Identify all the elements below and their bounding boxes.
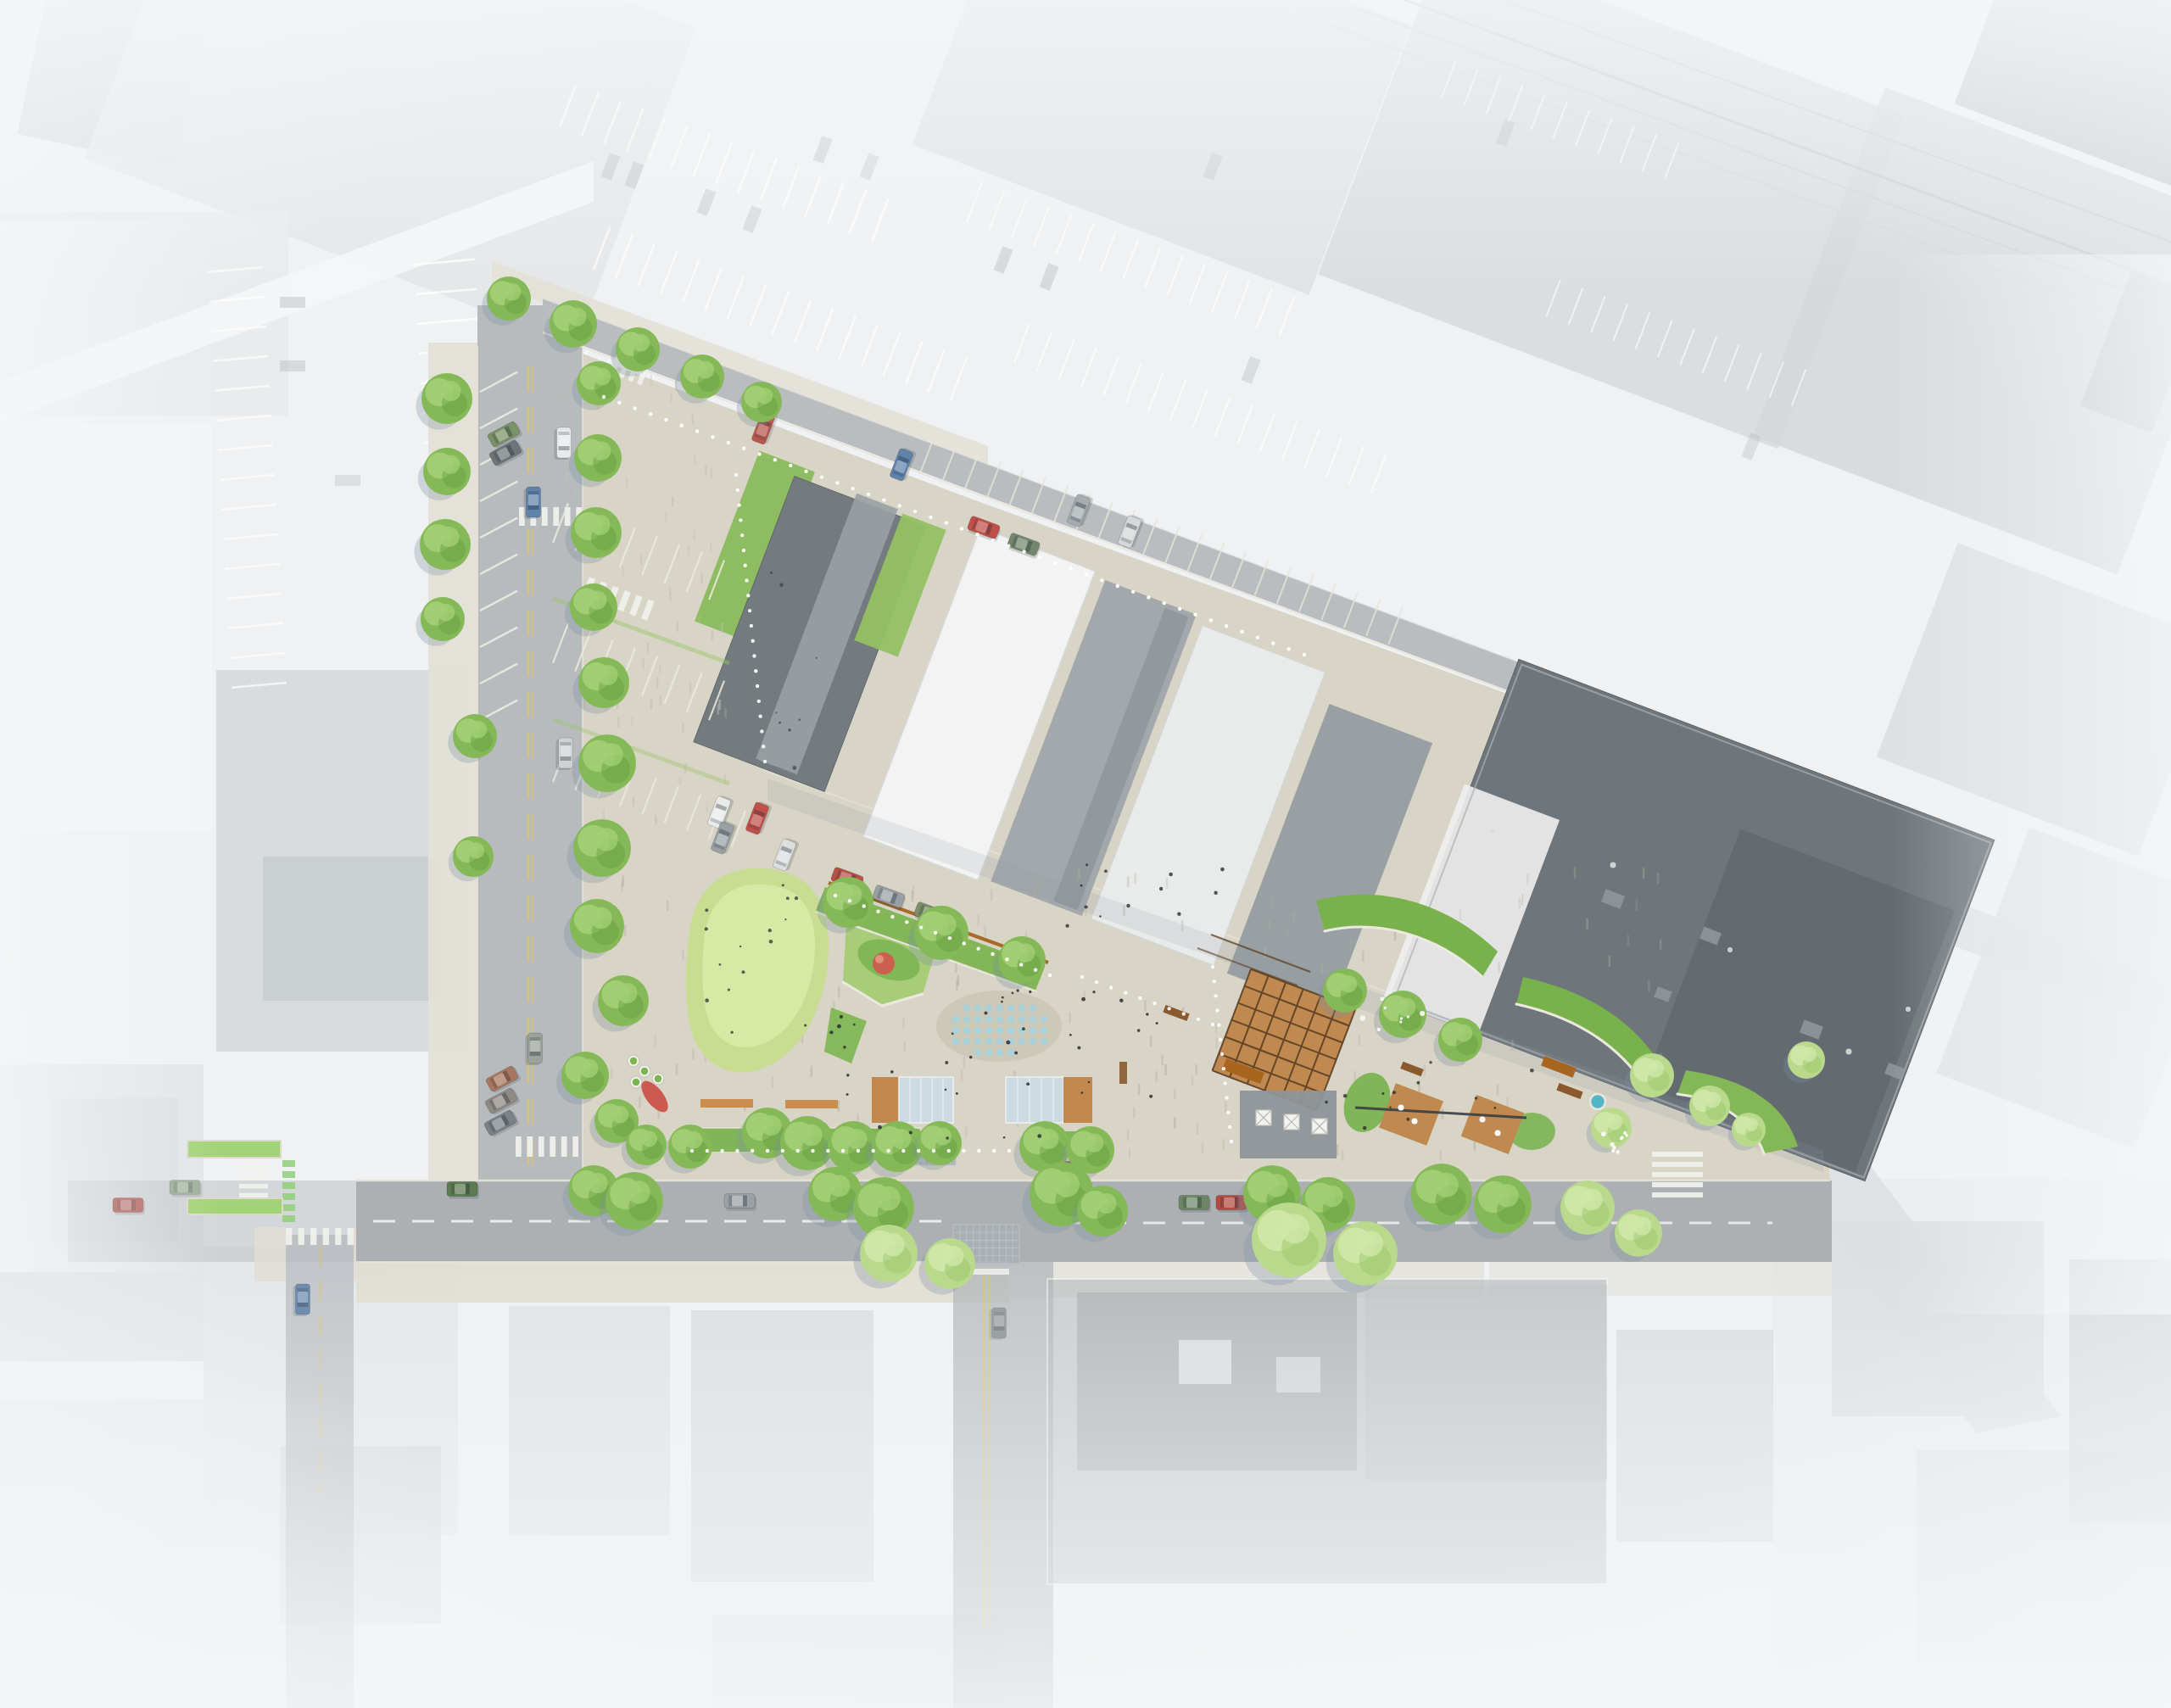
car xyxy=(555,427,572,460)
car xyxy=(724,1194,756,1211)
car xyxy=(113,1198,145,1215)
car xyxy=(526,1033,543,1065)
site-plan-svg xyxy=(0,0,2171,1708)
car xyxy=(170,1181,202,1197)
aerial-site-plan-screenshot xyxy=(0,0,2171,1708)
car xyxy=(1179,1196,1211,1213)
plan-layers xyxy=(0,0,2171,1708)
car xyxy=(990,1308,1007,1340)
car xyxy=(524,487,541,519)
car xyxy=(293,1284,310,1316)
wash-overlay xyxy=(0,0,2171,1708)
car xyxy=(447,1182,479,1199)
car xyxy=(556,738,573,770)
